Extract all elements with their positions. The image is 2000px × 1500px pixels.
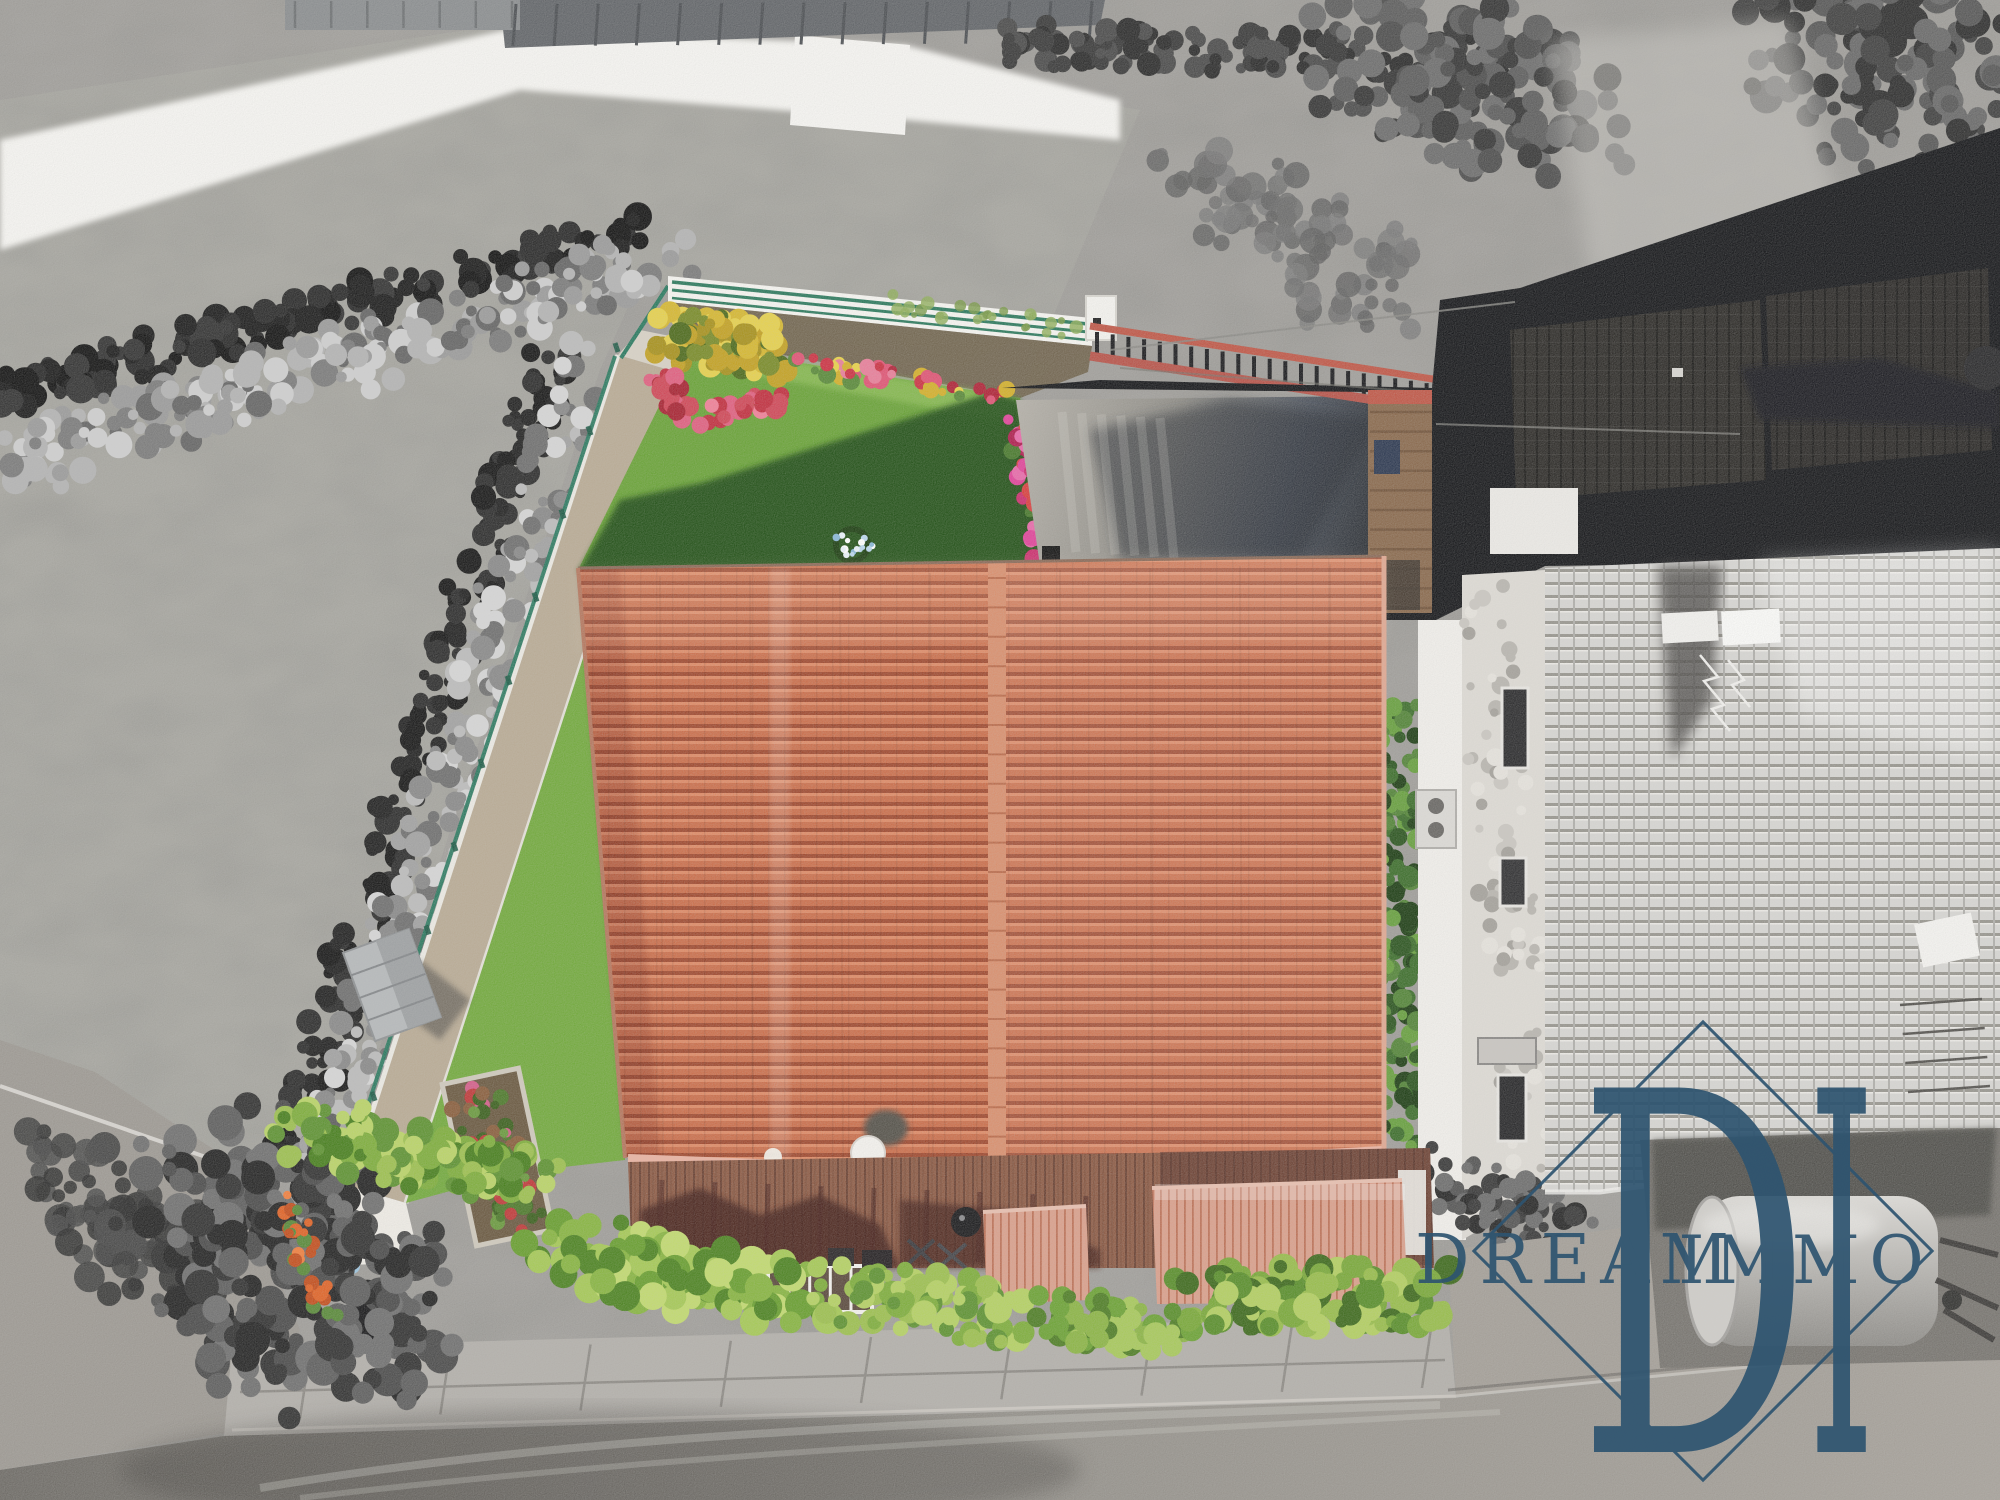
- watermark-word-immo: IMMO: [1678, 1222, 1933, 1299]
- aerial-photo: D I DREAM IMMO: [0, 0, 2000, 1500]
